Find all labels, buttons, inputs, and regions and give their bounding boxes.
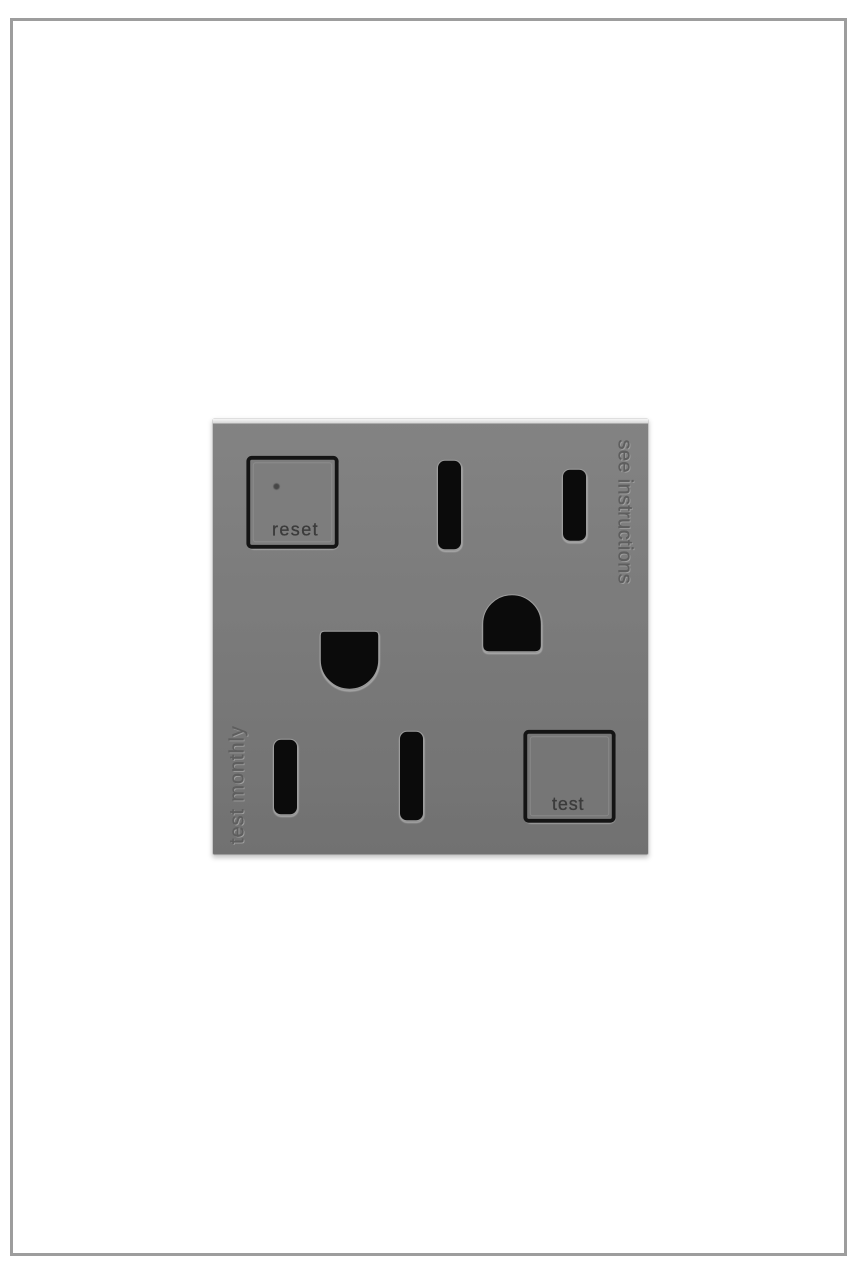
- svg-text:test: test: [552, 794, 584, 814]
- svg-text:see instructions: see instructions: [614, 440, 636, 585]
- svg-text:reset: reset: [272, 520, 319, 540]
- svg-text:test monthly: test monthly: [227, 725, 249, 844]
